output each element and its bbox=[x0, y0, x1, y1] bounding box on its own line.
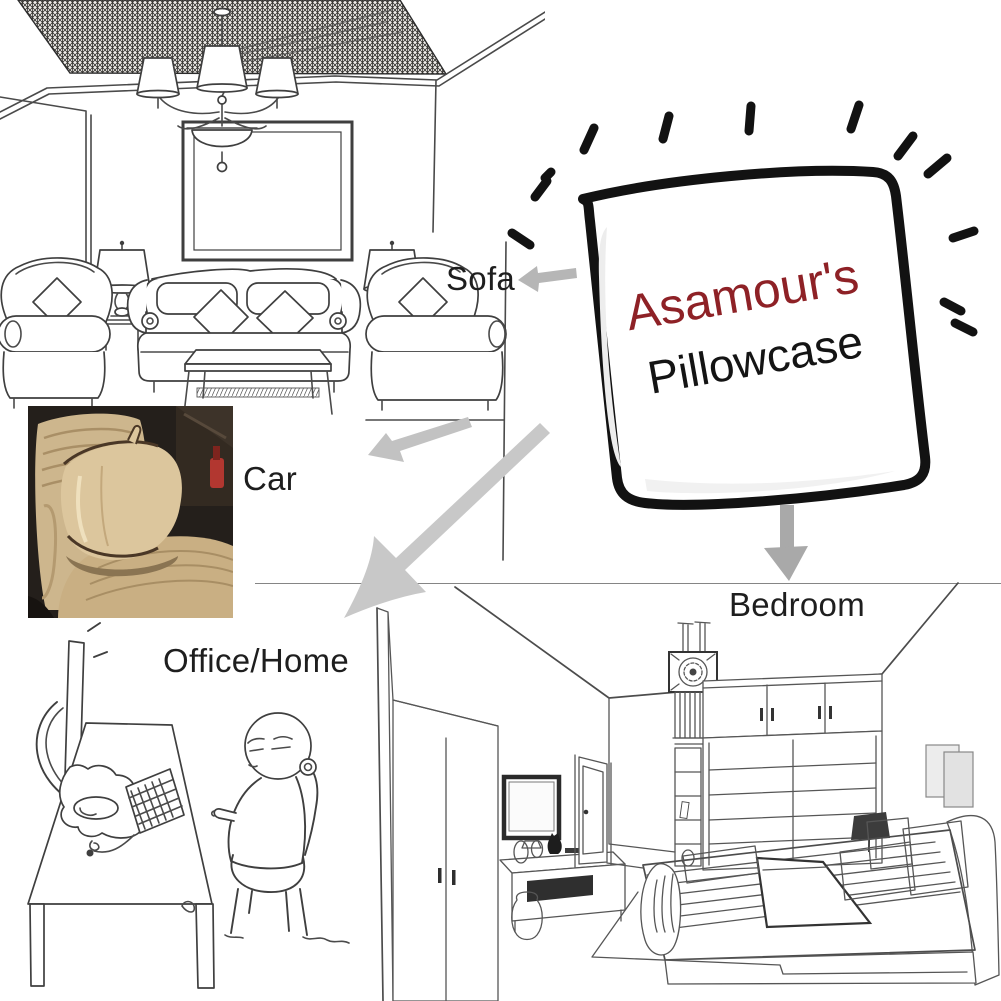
coffee-table bbox=[184, 350, 332, 414]
armchair-left bbox=[0, 258, 112, 408]
label-office-home: Office/Home bbox=[163, 644, 349, 677]
room-door bbox=[575, 755, 611, 867]
draped-sheet bbox=[641, 864, 681, 955]
car-arrow-shape bbox=[368, 417, 472, 462]
car-interior-console bbox=[176, 406, 233, 506]
label-sofa: Sofa bbox=[446, 262, 515, 295]
seatbelt-buckle bbox=[210, 458, 224, 488]
sofa-three-seat bbox=[128, 269, 361, 392]
car-seat-photo bbox=[28, 406, 233, 618]
motion-dashes bbox=[88, 623, 107, 657]
pillow-product-graphic: Asamour's Pillowcase bbox=[495, 75, 995, 545]
white-runner-blanket bbox=[757, 858, 870, 927]
bedroom-sketch bbox=[375, 580, 1001, 1001]
wall-frames bbox=[926, 745, 973, 807]
bed-front-face bbox=[665, 952, 976, 984]
label-car: Car bbox=[243, 462, 297, 495]
arrow-to-car bbox=[358, 412, 478, 477]
label-bedroom: Bedroom bbox=[729, 588, 865, 621]
shelf-unit bbox=[675, 748, 701, 866]
office-desk bbox=[28, 723, 214, 988]
sitting-person bbox=[212, 713, 316, 868]
bedside-lamp bbox=[851, 812, 890, 840]
pillowcase-promo-collage: Asamour's Pillowcase Sofa Car Office/Hom… bbox=[0, 0, 1001, 1001]
floor-squiggles bbox=[225, 935, 349, 943]
